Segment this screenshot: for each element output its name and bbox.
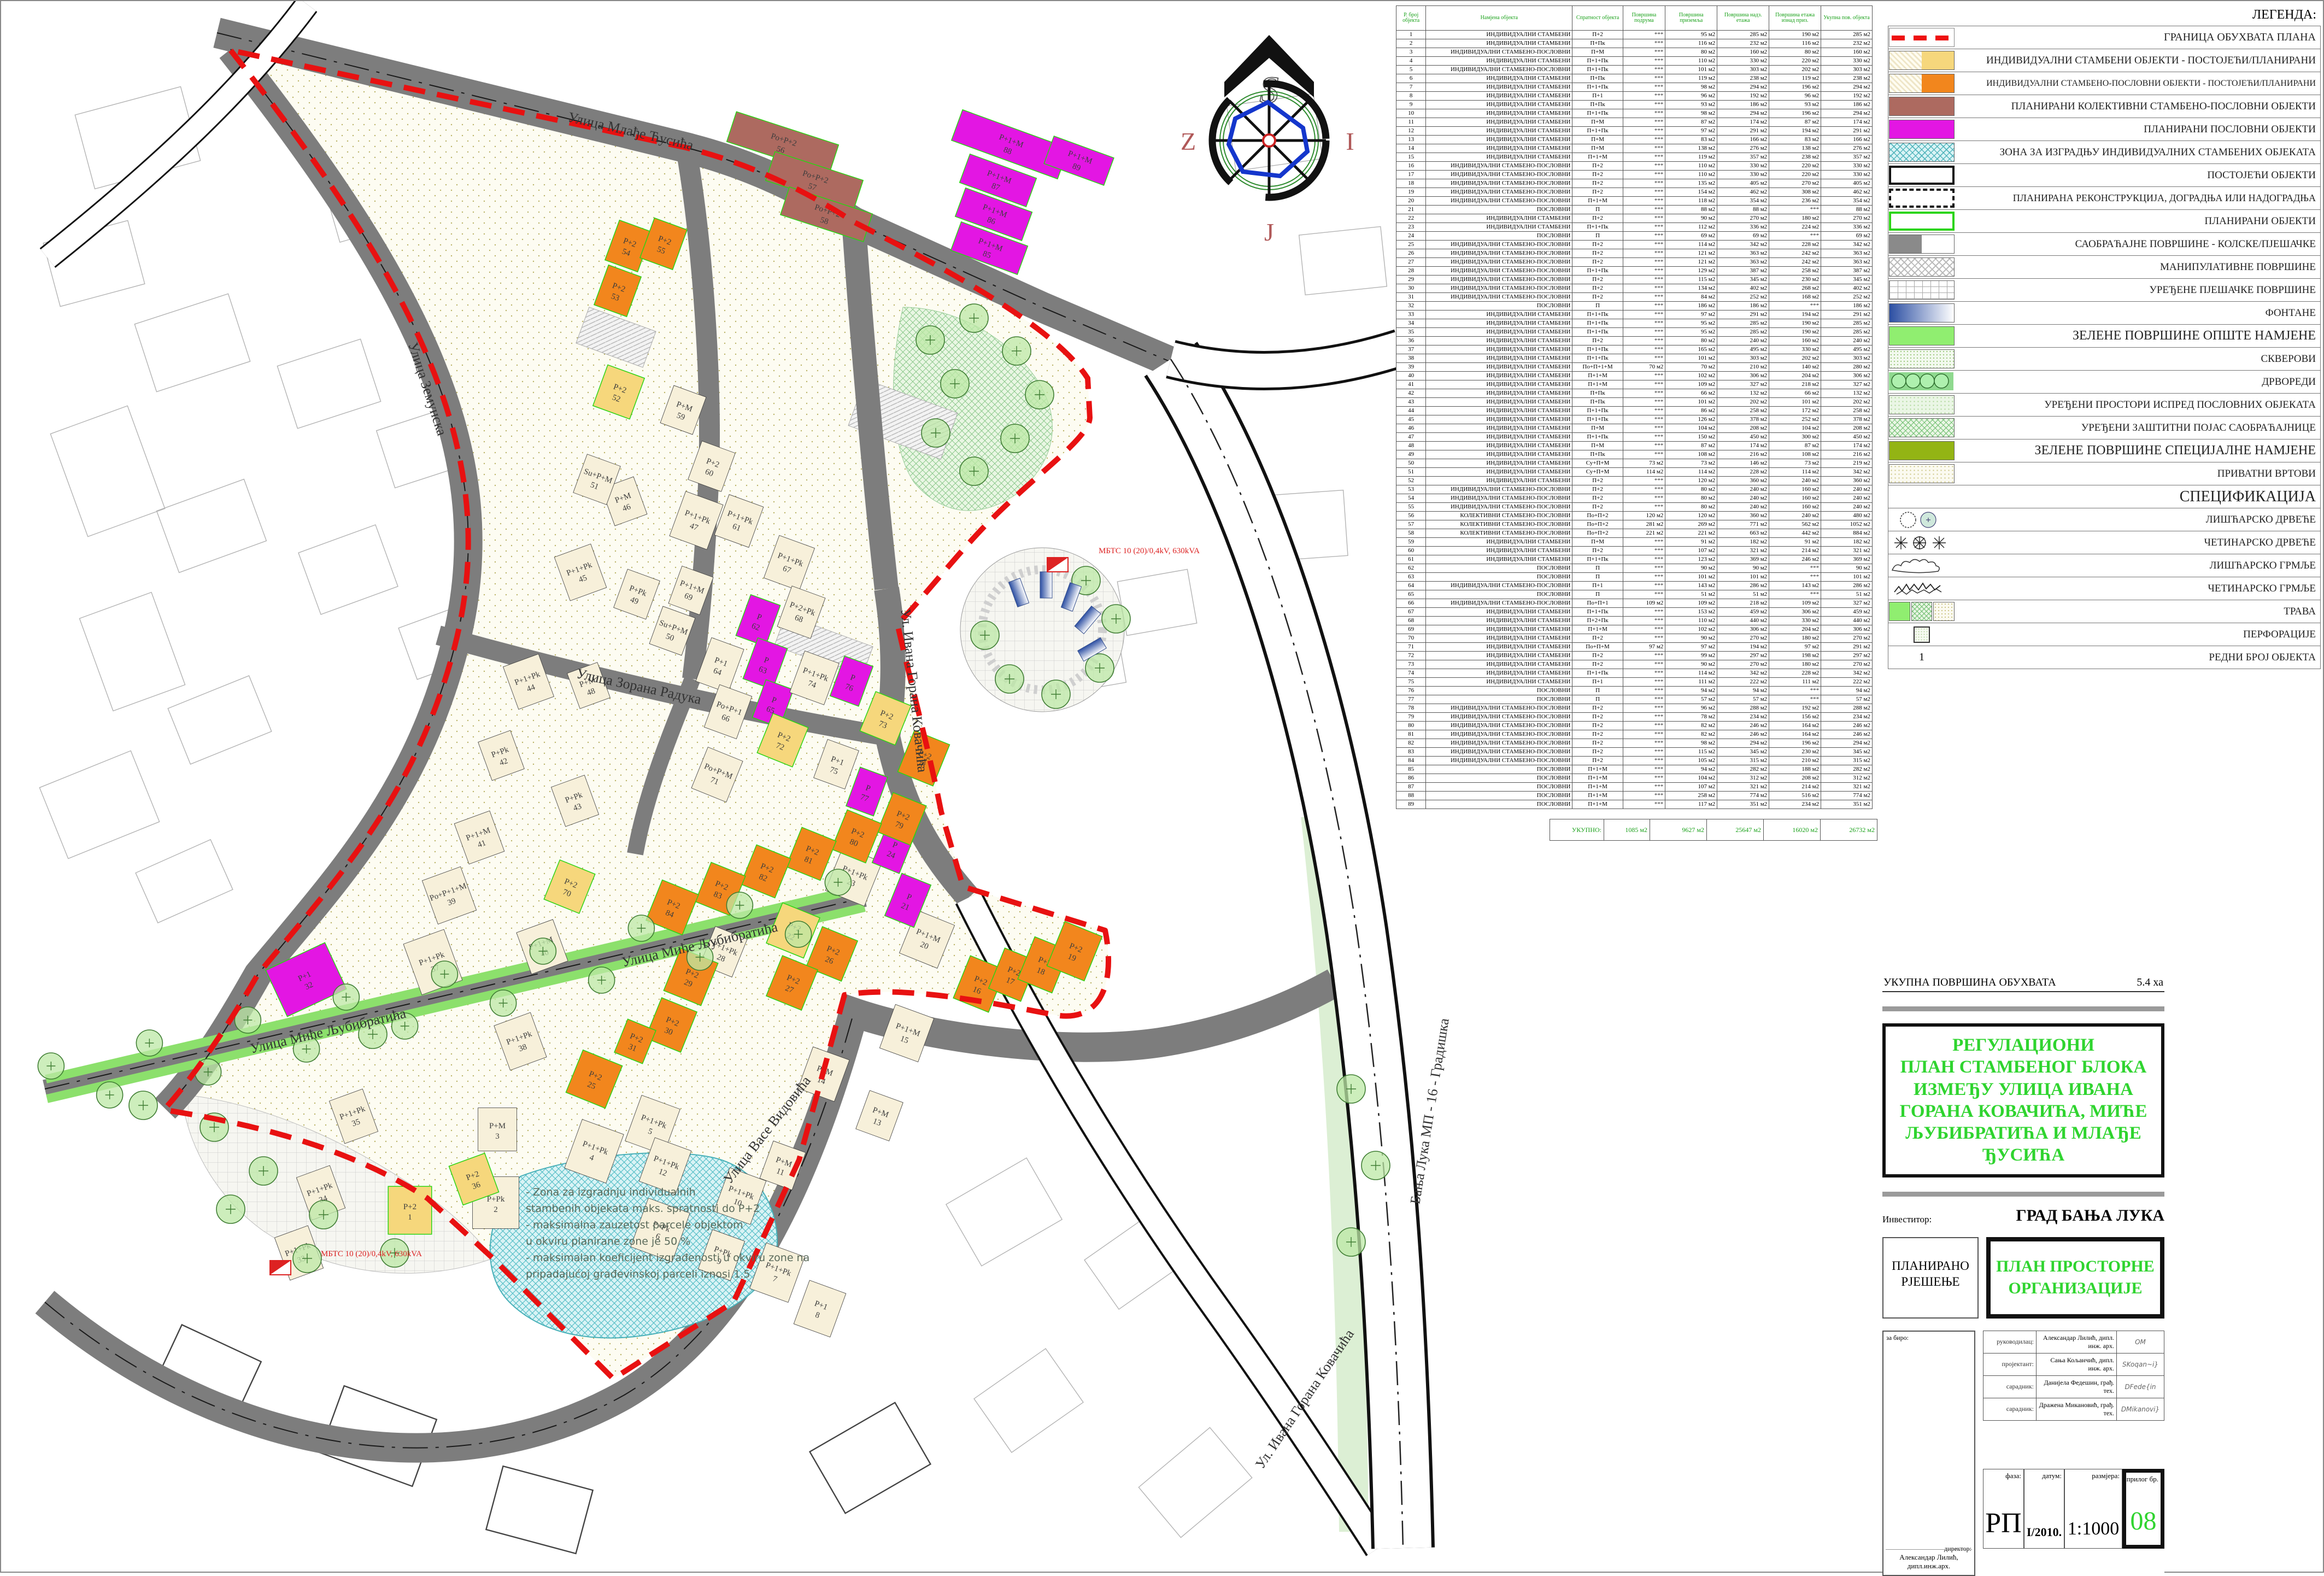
attachment-cell: прилог бр. 08 <box>2122 1469 2164 1549</box>
table-row: 74ИНДИВИДУАЛНИ СТАМБЕНИП+1+Пк***114 м234… <box>1396 669 1873 678</box>
table-row: 77ПОСЛОВНИП***57 м257 м2***57 м2 <box>1396 695 1873 704</box>
legend-swatch-garden <box>1889 464 1955 483</box>
bureau-box: за биро: директор: Александар Лилић, дип… <box>1882 1331 1975 1576</box>
table-row: 30ИНДИВИДУАЛНИ СТАМБЕНО-ПОСЛОВНИП+2***13… <box>1396 284 1873 293</box>
table-row: 26ИНДИВИДУАЛНИ СТАМБЕНО-ПОСЛОВНИП+2***12… <box>1396 249 1873 258</box>
table-row: 49ИНДИВИДУАЛНИ СТАМБЕНИП+Пк***108 м2216 … <box>1396 450 1873 459</box>
signature: SKoqan~i} <box>2117 1353 2164 1375</box>
area-summary: УКУПНА ПОВРШИНА ОБУХВАТА 5.4 ха <box>1882 975 2164 992</box>
legend-label: ПОСТОЈЕЋИ ОБЈЕКТИ <box>1955 169 2320 181</box>
credit-row: сарадник:Данијела Федешин, грађ. тех.DFe… <box>1983 1375 2164 1398</box>
table-header: Површина етажа изнад приз. <box>1769 6 1821 31</box>
table-row: 23ИНДИВИДУАЛНИ СТАМБЕНИП+1+Пк***112 м233… <box>1396 223 1873 232</box>
legend-label: ПЛАНИРАНА РЕКОНСТРУКЦИЈА, ДОГРАДЊА ИЛИ Н… <box>1955 192 2320 204</box>
legend-label: СПЕЦИФИКАЦИЈА <box>1955 488 2320 506</box>
legend-item: СКВЕРОВИ <box>1888 347 2320 370</box>
building: P+21 <box>389 1187 431 1234</box>
table-row: 2ИНДИВИДУАЛНИ СТАМБЕНИП+Пк***116 м2232 м… <box>1396 39 1873 48</box>
table-row: 59ИНДИВИДУАЛНИ СТАМБЕНИП+М***91 м2182 м2… <box>1396 538 1873 547</box>
tree-icon <box>825 869 851 895</box>
legend-swatch-green <box>1889 326 1955 345</box>
svg-text:3: 3 <box>495 1132 500 1141</box>
legend-swatch-infront <box>1889 395 1955 414</box>
tree-icon <box>1361 1151 1390 1180</box>
tree-icon <box>1085 654 1114 682</box>
legend-item: ТРАВА <box>1888 600 2320 623</box>
table-header: Спратност објекта <box>1572 6 1623 31</box>
zone-annotation-line: - Zona za izgradnju individualnih <box>526 1186 696 1198</box>
credit-row: пројектант:Сања Кољанчић, дипл. инж. арх… <box>1983 1353 2164 1375</box>
table-row: 1ИНДИВИДУАЛНИ СТАМБЕНИП+2***95 м2285 м21… <box>1396 31 1873 39</box>
table-row: 72ИНДИВИДУАЛНИ СТАМБЕНИП+2***99 м2297 м2… <box>1396 652 1873 660</box>
table-row: 42ИНДИВИДУАЛНИ СТАМБЕНИП+Пк***66 м2132 м… <box>1396 389 1873 398</box>
tree-icon <box>922 419 950 447</box>
table-row: 55ИНДИВИДУАЛНИ СТАМБЕНО-ПОСЛОВНИП+2***80… <box>1396 503 1873 512</box>
zone-annotation-line: u okviru planirane zone je 50 % <box>526 1235 690 1247</box>
spec-totals: УКУПНО:1085 м29627 м225647 м216020 м2267… <box>1550 819 1877 841</box>
table-row: 88ПОСЛОВНИП+1+М***258 м2774 м2516 м2774 … <box>1396 792 1873 800</box>
tree-icon <box>941 370 969 398</box>
main-title-line: ГОРАНА КОВАЧИЋА, МИЋЕ <box>1889 1100 2158 1122</box>
divider-bar <box>1882 1006 2164 1011</box>
table-row: 80ИНДИВИДУАЛНИ СТАМБЕНО-ПОСЛОВНИП+2***82… <box>1396 722 1873 730</box>
phase-value: РП <box>1983 1507 2023 1539</box>
table-row: 9ИНДИВИДУАЛНИ СТАМБЕНИП+Пк***93 м2186 м2… <box>1396 101 1873 109</box>
legend-label: СКВЕРОВИ <box>1955 353 2320 365</box>
table-row: 62ПОСЛОВНИП***90 м290 м2***90 м2 <box>1396 564 1873 573</box>
legend-swatch-squares <box>1889 349 1955 368</box>
tree-icon <box>1025 380 1054 409</box>
table-row: 41ИНДИВИДУАЛНИ СТАМБЕНИП+1+М***109 м2327… <box>1396 380 1873 389</box>
legend-item: ФОНТАНЕ <box>1888 301 2320 324</box>
legend-label: УРЕЂЕНИ ЗАШТИТНИ ПОЈАС САОБРАЋАЈНИЦЕ <box>1955 422 2320 434</box>
legend-label: САОБРАЋАЈНЕ ПОВРШИНЕ - КОЛСКЕ/ПЈЕШАЧКЕ <box>1955 238 2320 250</box>
legend-label: ЗЕЛЕНЕ ПОВРШИНЕ СПЕЦИЈАЛНЕ НАМЈЕНЕ <box>1955 443 2320 458</box>
tree-icon <box>129 1091 157 1120</box>
planned-solution-box: ПЛАНИРАНОРЈЕШЕЊЕ <box>1882 1237 1979 1319</box>
legend-swatch-treerow <box>1889 372 1955 391</box>
tree-icon <box>97 1082 123 1108</box>
legend-label: ЧЕТИНАРСКО ДРВЕЋЕ <box>1955 537 2320 549</box>
table-row: 81ИНДИВИДУАЛНИ СТАМБЕНО-ПОСЛОВНИП+2***82… <box>1396 730 1873 739</box>
tree-icon <box>726 892 753 918</box>
table-row: 86ПОСЛОВНИП+1+М***104 м2312 м2208 м2312 … <box>1396 774 1873 783</box>
table-row: 31ИНДИВИДУАЛНИ СТАМБЕНО-ПОСЛОВНИП+2***84… <box>1396 293 1873 302</box>
tree-icon <box>216 1195 245 1223</box>
legend-swatch-perf <box>1889 625 1955 644</box>
legend-label: ПЛАНИРАНИ ОБЈЕКТИ <box>1955 215 2320 227</box>
table-row: 17ИНДИВИДУАЛНИ СТАМБЕНО-ПОСЛОВНИП+2***11… <box>1396 171 1873 179</box>
totals-label: УКУПНО: <box>1550 819 1604 841</box>
legend-swatch-recon <box>1889 189 1955 208</box>
legend-label: ПЛАНИРАНИ ПОСЛОВНИ ОБЈЕКТИ <box>1955 124 2320 136</box>
table-row: 79ИНДИВИДУАЛНИ СТАМБЕНО-ПОСЛОВНИП+2***78… <box>1396 713 1873 722</box>
table-row: 73ИНДИВИДУАЛНИ СТАМБЕНИП+2***90 м2270 м2… <box>1396 660 1873 669</box>
legend-swatch-plan <box>1889 212 1955 231</box>
street-label: Бања Лука МП - 16 - Градишка <box>1407 1017 1452 1205</box>
main-title-line: ПЛАН СТАМБЕНОГ БЛОКА <box>1889 1056 2158 1078</box>
table-row: 36ИНДИВИДУАЛНИ СТАМБЕНИП+2***80 м2240 м2… <box>1396 337 1873 345</box>
legend-swatch-belt <box>1889 418 1955 437</box>
fountain <box>1040 572 1052 598</box>
table-row: 16ИНДИВИДУАЛНИ СТАМБЕНО-ПОСЛОВНИП+2***11… <box>1396 162 1873 171</box>
signature: OM <box>2117 1331 2164 1353</box>
area-summary-value: 5.4 ха <box>2137 976 2163 989</box>
legend-item: ЗЕЛЕНЕ ПОВРШИНЕ ОПШТЕ НАМЈЕНЕ <box>1888 324 2320 347</box>
svg-text:J: J <box>1264 218 1274 246</box>
table-row: 75ИНДИВИДУАЛНИ СТАМБЕНИП+1***111 м2222 м… <box>1396 678 1873 687</box>
legend-label: МАНИПУЛАТИВНЕ ПОВРШИНЕ <box>1955 261 2320 273</box>
spec-table: Р. број објектаНамјена објектаСпратност … <box>1396 5 1873 809</box>
table-row: 19ИНДИВИДУАЛНИ СТАМБЕНО-ПОСЛОВНИП+2***15… <box>1396 188 1873 197</box>
tree-icon <box>293 1244 321 1273</box>
legend-swatch-res <box>1889 51 1955 70</box>
svg-text:1: 1 <box>408 1213 412 1222</box>
table-row: 65ПОСЛОВНИП***51 м251 м2***51 м2 <box>1396 590 1873 599</box>
table-row: 48ИНДИВИДУАЛНИ СТАМБЕНИП+М***87 м2174 м2… <box>1396 442 1873 450</box>
legend-title: ЛЕГЕНДА: <box>1888 5 2321 26</box>
totals-value: 1085 м2 <box>1604 819 1650 841</box>
table-row: 56КОЛЕКТИВНИ СТАМБЕНО-ПОСЛОВНИПо+П+2120 … <box>1396 512 1873 520</box>
legend-item: ИНДИВИДУАЛНИ СТАМБЕНО-ПОСЛОВНИ ОБЈЕКТИ -… <box>1888 72 2320 95</box>
table-header: Намјена објекта <box>1426 6 1572 31</box>
tree-icon <box>431 961 457 987</box>
compass-rose: S Z I J <box>1181 35 1354 246</box>
table-header: Површина надз. етажа <box>1717 6 1769 31</box>
legend-item: ЧЕТИНАРСКО ГРМЉЕ <box>1888 577 2320 600</box>
legend-label: ЧЕТИНАРСКО ГРМЉЕ <box>1955 583 2320 595</box>
map-panel: P+21P+Pk2P+M3P+1+Pk4P+1+Pk5P+Pk6P+1+Pk7P… <box>1 1 1510 1574</box>
table-row: 47ИНДИВИДУАЛНИ СТАМБЕНИП+1+Пк***150 м245… <box>1396 433 1873 442</box>
totals-value: 16020 м2 <box>1764 819 1821 841</box>
substation-label: МБТС 10 (20)/0,4kV, 630kVA <box>1099 547 1200 555</box>
table-row: 37ИНДИВИДУАЛНИ СТАМБЕНИП+1+Пк***165 м249… <box>1396 345 1873 354</box>
investor-label: Инвеститор: <box>1882 1214 1932 1225</box>
table-row: 32ПОСЛОВНИП***186 м2186 м2***186 м2 <box>1396 302 1873 310</box>
table-row: 66ИНДИВИДУАЛНИ СТАМБЕНО-ПОСЛОВНИПо+П+110… <box>1396 599 1873 608</box>
specification-table-panel: Р. број објектаНамјена објектаСпратност … <box>1396 5 1881 841</box>
legend-label: ФОНТАНЕ <box>1955 307 2320 319</box>
tree-icon <box>971 621 999 649</box>
table-row: 68ИНДИВИДУАЛНИ СТАМБЕНИП+2+Пк***110 м244… <box>1396 617 1873 625</box>
legend-swatch-special <box>1889 441 1955 460</box>
table-row: 13ИНДИВИДУАЛНИ СТАМБЕНИП+М***83 м2166 м2… <box>1396 136 1873 144</box>
tree-icon <box>995 665 1024 693</box>
table-row: 85ПОСЛОВНИП+1+М***94 м2282 м2188 м2282 м… <box>1396 765 1873 774</box>
table-row: 20ИНДИВИДУАЛНИ СТАМБЕНО-ПОСЛОВНИП+1+М***… <box>1396 197 1873 206</box>
signature: DFede{in <box>2117 1375 2164 1398</box>
zone-annotation-line: - maksimalna zauzetost parcele objektom <box>526 1219 743 1231</box>
table-row: 27ИНДИВИДУАЛНИ СТАМБЕНО-ПОСЛОВНИП+2***12… <box>1396 258 1873 267</box>
table-row: 69ИНДИВИДУАЛНИ СТАМБЕНИП+1+М***102 м2306… <box>1396 625 1873 634</box>
zone-annotation-line: stambenih objekata maks. spratnosti do P… <box>526 1203 760 1215</box>
title-block: УКУПНА ПОВРШИНА ОБУХВАТА 5.4 ха РЕГУЛАЦИ… <box>1882 975 2164 1576</box>
legend-swatch-grass <box>1889 602 1955 621</box>
svg-text:P+M: P+M <box>489 1122 506 1130</box>
main-title-line: РЕГУЛАЦИОНИ <box>1889 1034 2158 1056</box>
legend-item: УРЕЂЕНИ ПРОСТОРИ ИСПРЕД ПОСЛОВНИХ ОБЈЕКА… <box>1888 393 2320 416</box>
legend-item: ДРВОРЕДИ <box>1888 370 2320 393</box>
table-row: 22ИНДИВИДУАЛНИ СТАМБЕНИП+2***90 м2270 м2… <box>1396 214 1873 223</box>
table-row: 11ИНДИВИДУАЛНИ СТАМБЕНИП+М***87 м2174 м2… <box>1396 118 1873 127</box>
legend-item: ПЛАНИРАНИ ОБЈЕКТИ <box>1888 209 2320 232</box>
table-row: 57КОЛЕКТИВНИ СТАМБЕНО-ПОСЛОВНИПо+П+2281 … <box>1396 520 1873 529</box>
legend-swatch-col <box>1889 97 1955 116</box>
tree-icon <box>1042 680 1070 708</box>
table-row: 8ИНДИВИДУАЛНИ СТАМБЕНИП+1***96 м2192 м29… <box>1396 92 1873 101</box>
date-value: I/2010. <box>2024 1525 2064 1539</box>
main-title-line: ИЗМЕЂУ УЛИЦА ИВАНА <box>1889 1079 2158 1100</box>
table-row: 60ИНДИВИДУАЛНИ СТАМБЕНИП+2***107 м2321 м… <box>1396 547 1873 555</box>
table-row: 10ИНДИВИДУАЛНИ СТАМБЕНИП+1+Пк***98 м2294… <box>1396 109 1873 118</box>
scale-cell: размјера: 1:1000 <box>2064 1469 2122 1549</box>
table-row: 38ИНДИВИДУАЛНИ СТАМБЕНИП+1+Пк***101 м230… <box>1396 354 1873 363</box>
phase-row: фаза: РП датум: I/2010. размјера: 1:1000… <box>1983 1469 2164 1549</box>
totals-value: 9627 м2 <box>1650 819 1707 841</box>
legend-item: ЧЕТИНАРСКО ДРВЕЋЕ <box>1888 531 2320 554</box>
building: P+M3 <box>478 1108 517 1151</box>
legend-item: ИНДИВИДУАЛНИ СТАМБЕНИ ОБЈЕКТИ - ПОСТОЈЕЋ… <box>1888 49 2320 72</box>
table-row: 28ИНДИВИДУАЛНИ СТАМБЕНО-ПОСЛОВНИП+1+Пк**… <box>1396 267 1873 276</box>
tree-icon <box>309 1200 338 1229</box>
plan-sheet: P+21P+Pk2P+M3P+1+Pk4P+1+Pk5P+Pk6P+1+Pk7P… <box>0 0 2324 1573</box>
table-row: 29ИНДИВИДУАЛНИ СТАМБЕНО-ПОСЛОВНИП+2***11… <box>1396 276 1873 284</box>
table-row: 33ИНДИВИДУАЛНИ СТАМБЕНИП+1+Пк***97 м2291… <box>1396 310 1873 319</box>
credits-table: руководилац:Александар Лилић, дипл. инж.… <box>1983 1331 2164 1421</box>
map-svg: P+21P+Pk2P+M3P+1+Pk4P+1+Pk5P+Pk6P+1+Pk7P… <box>1 1 1510 1574</box>
tree-icon <box>785 921 812 947</box>
tree-icon <box>960 457 988 485</box>
table-row: 87ПОСЛОВНИП+1+М***107 м2321 м2214 м2321 … <box>1396 783 1873 792</box>
table-row: 40ИНДИВИДУАЛНИ СТАМБЕНИП+1+М***102 м2306… <box>1396 372 1873 380</box>
main-title-box: РЕГУЛАЦИОНИПЛАН СТАМБЕНОГ БЛОКАИЗМЕЂУ УЛ… <box>1882 1023 2164 1177</box>
legend-swatch-boundary <box>1889 28 1955 47</box>
legend-label: РЕДНИ БРОЈ ОБЈЕКТА <box>1955 652 2320 664</box>
tree-icon <box>1001 424 1029 453</box>
phase-cell: фаза: РП <box>1983 1469 2024 1549</box>
legend-item: УРЕЂЕНИ ЗАШТИТНИ ПОЈАС САОБРАЋАЈНИЦЕ <box>1888 416 2320 439</box>
legend-item: МАНИПУЛАТИВНЕ ПОВРШИНЕ <box>1888 255 2320 278</box>
table-row: 51ИНДИВИДУАЛНИ СТАМБЕНИСу+П+М114 м2114 м… <box>1396 468 1873 477</box>
legend-item: ПЛАНИРАНА РЕКОНСТРУКЦИЈА, ДОГРАДЊА ИЛИ Н… <box>1888 186 2320 209</box>
legend-item: ПЛАНИРАНИ ПОСЛОВНИ ОБЈЕКТИ <box>1888 118 2320 140</box>
legend-swatch-exist <box>1889 166 1955 185</box>
scale-value: 1:1000 <box>2065 1519 2122 1539</box>
building: P+M13 <box>856 1091 902 1140</box>
signature: DMikanovi} <box>2117 1398 2164 1420</box>
table-row: 43ИНДИВИДУАЛНИ СТАМБЕНИП+Пк***101 м2202 … <box>1396 398 1873 407</box>
legend-swatch-num: 1 <box>1889 648 1955 667</box>
table-row: 71ИНДИВИДУАЛНИ СТАМБЕНИПо+П+М97 м297 м21… <box>1396 643 1873 652</box>
tree-icon <box>1337 1228 1365 1256</box>
tree-icon <box>589 967 615 993</box>
table-row: 46ИНДИВИДУАЛНИ СТАМБЕНИП+М***104 м2208 м… <box>1396 424 1873 433</box>
legend-item: ЛИШЋАРСКО ДРВЕЋЕ <box>1888 508 2320 531</box>
table-row: 3ИНДИВИДУАЛНИ СТАМБЕНО-ПОСЛОВНИП+М***80 … <box>1396 48 1873 57</box>
table-row: 76ПОСЛОВНИП***94 м294 м2***94 м2 <box>1396 687 1873 695</box>
table-header: Укупна пов. објекта <box>1821 6 1873 31</box>
table-row: 35ИНДИВИДУАЛНИ СТАМБЕНИП+1+Пк***95 м2285… <box>1396 328 1873 337</box>
legend-label: УРЕЂЕНЕ ПЈЕШАЧКЕ ПОВРШИНЕ <box>1955 284 2320 296</box>
legend-label: ПЕРФОРАЦИЈЕ <box>1955 629 2320 641</box>
legend-label: ПЛАНИРАНИ КОЛЕКТИВНИ СТАМБЕНО-ПОСЛОВНИ О… <box>1955 101 2320 113</box>
totals-value: 26732 м2 <box>1821 819 1877 841</box>
table-row: 63ПОСЛОВНИП***101 м2101 м2***101 м2 <box>1396 573 1873 582</box>
legend-label: УРЕЂЕНИ ПРОСТОРИ ИСПРЕД ПОСЛОВНИХ ОБЈЕКА… <box>1955 399 2320 411</box>
table-header: Р. број објекта <box>1396 6 1426 31</box>
svg-text:I: I <box>1346 127 1354 155</box>
main-title-line: ЉУБИБРАТИЋА И МЛАЂЕ ЂУСИЋА <box>1889 1122 2158 1167</box>
legend-item: ПРИВАТНИ ВРТОВИ <box>1888 462 2320 485</box>
table-row: 45ИНДИВИДУАЛНИ СТАМБЕНИП+1+Пк***126 м237… <box>1396 415 1873 424</box>
table-header: Површина приземља <box>1665 6 1717 31</box>
table-row: 70ИНДИВИДУАЛНИ СТАМБЕНИП+2***90 м2270 м2… <box>1396 634 1873 643</box>
legend-item: ГРАНИЦА ОБУХВАТА ПЛАНА <box>1888 26 2320 49</box>
legend-swatch-conif <box>1889 533 1955 552</box>
credit-row: руководилац:Александар Лилић, дипл. инж.… <box>1983 1331 2164 1353</box>
date-cell: датум: I/2010. <box>2024 1469 2064 1549</box>
table-row: 5ИНДИВИДУАЛНИ СТАМБЕНО-ПОСЛОВНИП+1+Пк***… <box>1396 66 1873 74</box>
legend-item: 1РЕДНИ БРОЈ ОБЈЕКТА <box>1888 646 2320 669</box>
table-row: 89ПОСЛОВНИП+1+М***117 м2351 м2234 м2351 … <box>1396 800 1873 809</box>
totals-value: 25647 м2 <box>1707 819 1764 841</box>
svg-text:Z: Z <box>1181 127 1196 155</box>
substation-label: МБТС 10 (20)/0,4kV, 630kVA <box>321 1250 422 1258</box>
table-row: 54ИНДИВИДУАЛНИ СТАМБЕНО-ПОСЛОВНИП+2***80… <box>1396 494 1873 503</box>
legend-swatch-traffic <box>1889 235 1955 254</box>
table-row: 14ИНДИВИДУАЛНИ СТАМБЕНИП+М***138 м2276 м… <box>1396 144 1873 153</box>
table-row: 78ИНДИВИДУАЛНИ СТАМБЕНО-ПОСЛОВНИП+2***96… <box>1396 704 1873 713</box>
plan-organization-box: ПЛАН ПРОСТОРНЕОРГАНИЗАЦИЈЕ <box>1986 1237 2164 1319</box>
legend-label: ИНДИВИДУАЛНИ СТАМБЕНО-ПОСЛОВНИ ОБЈЕКТИ -… <box>1955 79 2320 89</box>
legend-item: ПЕРФОРАЦИЈЕ <box>1888 623 2320 646</box>
legend-swatch-paved <box>1889 280 1955 300</box>
legend-item: ЗОНА ЗА ИЗГРАДЊУ ИНДИВИДУАЛНИХ СТАМБЕНИХ… <box>1888 140 2320 163</box>
legend-label: ТРАВА <box>1955 606 2320 618</box>
legend-label: ИНДИВИДУАЛНИ СТАМБЕНИ ОБЈЕКТИ - ПОСТОЈЕЋ… <box>1955 55 2320 67</box>
legend-label: ГРАНИЦА ОБУХВАТА ПЛАНА <box>1955 31 2320 44</box>
building: P+18 <box>794 1281 846 1337</box>
credit-row: сарадник:Дражена Микановић, грађ. тех.DM… <box>1983 1398 2164 1420</box>
table-row: 67ИНДИВИДУАЛНИ СТАМБЕНИП+1+Пк***153 м245… <box>1396 608 1873 617</box>
table-row: 52ИНДИВИДУАЛНИ СТАМБЕНИП+2***120 м2360 м… <box>1396 477 1873 485</box>
table-row: 12ИНДИВИДУАЛНИ СТАМБЕНИП+1+Пк***97 м2291… <box>1396 127 1873 136</box>
table-row: 84ИНДИВИДУАЛНИ СТАМБЕНО-ПОСЛОВНИП+2***10… <box>1396 757 1873 765</box>
tree-icon <box>38 1053 64 1079</box>
legend-item: УРЕЂЕНЕ ПЈЕШАЧКЕ ПОВРШИНЕ <box>1888 278 2320 301</box>
table-row: 44ИНДИВИДУАЛНИ СТАМБЕНИП+1+Пк***86 м2258… <box>1396 407 1873 415</box>
legend-swatch-manip <box>1889 257 1955 277</box>
table-row: 83ИНДИВИДУАЛНИ СТАМБЕНО-ПОСЛОВНИП+2***11… <box>1396 748 1873 757</box>
tree-icon <box>1337 1075 1365 1103</box>
table-row: 24ПОСЛОВНИП***69 м269 м2***69 м2 <box>1396 232 1873 241</box>
legend-swatch-dshrub <box>1889 556 1955 575</box>
table-row: 15ИНДИВИДУАЛНИ СТАМБЕНИП+1+М***119 м2357… <box>1396 153 1873 162</box>
table-row: 53ИНДИВИДУАЛНИ СТАМБЕНО-ПОСЛОВНИП+2***80… <box>1396 485 1873 494</box>
tree-icon <box>333 984 359 1010</box>
divider-bar <box>1882 1192 2164 1197</box>
bureau-label: за биро: <box>1886 1334 1909 1342</box>
tree-icon <box>960 304 988 332</box>
legend-swatch-mix <box>1889 74 1955 93</box>
table-row: 64ИНДИВИДУАЛНИ СТАМБЕНО-ПОСЛОВНИП+1***14… <box>1396 582 1873 590</box>
legend-item: САОБРАЋАЈНЕ ПОВРШИНЕ - КОЛСКЕ/ПЈЕШАЧКЕ <box>1888 232 2320 255</box>
svg-text:2: 2 <box>494 1205 498 1214</box>
legend-panel: ЛЕГЕНДА: ГРАНИЦА ОБУХВАТА ПЛАНАИНДИВИДУА… <box>1888 5 2321 669</box>
legend-item: СПЕЦИФИКАЦИЈА <box>1888 485 2320 508</box>
legend-swatch-cshrub <box>1889 579 1955 598</box>
legend-item: ЗЕЛЕНЕ ПОВРШИНЕ СПЕЦИЈАЛНЕ НАМЈЕНЕ <box>1888 439 2320 462</box>
director-name: Александар Лилић, дипл.инж.арх. <box>1886 1549 1972 1571</box>
legend-item: ЛИШЋАРСКО ГРМЉЕ <box>1888 554 2320 577</box>
legend-item: ПОСТОЈЕЋИ ОБЈЕКТИ <box>1888 163 2320 186</box>
legend-label: ЛИШЋАРСКО ГРМЉЕ <box>1955 560 2320 572</box>
svg-text:P+2: P+2 <box>403 1203 416 1211</box>
zone-annotation-line: - maksimalan koeficijent izgrađenosti u … <box>526 1252 809 1264</box>
table-row: 7ИНДИВИДУАЛНИ СТАМБЕНИП+1+Пк***98 м2294 … <box>1396 83 1873 92</box>
table-row: 58КОЛЕКТИВНИ СТАМБЕНО-ПОСЛОВНИПо+П+2221 … <box>1396 529 1873 538</box>
tree-icon <box>628 915 654 941</box>
legend-label: ЗЕЛЕНЕ ПОВРШИНЕ ОПШТЕ НАМЈЕНЕ <box>1955 329 2320 343</box>
table-row: 61ИНДИВИДУАЛНИ СТАМБЕНИП+1+Пк***123 м236… <box>1396 555 1873 564</box>
tree-icon <box>490 990 517 1016</box>
table-row: 34ИНДИВИДУАЛНИ СТАМБЕНИП+1+Пк***95 м2285… <box>1396 319 1873 328</box>
tree-icon <box>916 326 944 354</box>
tree-icon <box>530 938 556 964</box>
tree-icon <box>1102 605 1130 633</box>
zone-annotation-line: pripadajućoj građevinskoj parceli iznosi… <box>526 1268 750 1280</box>
attachment-number: 08 <box>2126 1506 2161 1536</box>
legend-label: ДРВОРЕДИ <box>1955 376 2320 388</box>
legend-label: ЛИШЋАРСКО ДРВЕЋЕ <box>1955 514 2320 526</box>
table-row: 82ИНДИВИДУАЛНИ СТАМБЕНО-ПОСЛОВНИП+2***98… <box>1396 739 1873 748</box>
legend-swatch-zone <box>1889 143 1955 162</box>
table-row: 18ИНДИВИДУАЛНИ СТАМБЕНО-ПОСЛОВНИП+2***13… <box>1396 179 1873 188</box>
tree-icon <box>249 1157 278 1185</box>
tree-icon <box>1002 337 1031 365</box>
area-summary-label: УКУПНА ПОВРШИНА ОБУХВАТА <box>1883 976 2056 989</box>
legend-item: ПЛАНИРАНИ КОЛЕКТИВНИ СТАМБЕНО-ПОСЛОВНИ О… <box>1888 95 2320 118</box>
legend-swatch-fountain <box>1889 303 1955 323</box>
svg-text:P+Pk: P+Pk <box>487 1195 505 1204</box>
table-row: 25ИНДИВИДУАЛНИ СТАМБЕНО-ПОСЛОВНИП+2***11… <box>1396 241 1873 249</box>
legend-swatch-bus <box>1889 120 1955 139</box>
legend-label: ЗОНА ЗА ИЗГРАДЊУ ИНДИВИДУАЛНИХ СТАМБЕНИХ… <box>1955 147 2320 159</box>
legend-swatch-decid <box>1889 510 1955 529</box>
table-row: 4ИНДИВИДУАЛНИ СТАМБЕНИП+1+Пк***110 м2330… <box>1396 57 1873 66</box>
investor-name: ГРАД БАЊА ЛУКА <box>2016 1206 2165 1225</box>
table-header: Површина подрума <box>1623 6 1665 31</box>
tree-icon <box>136 1030 162 1056</box>
legend-swatch-none <box>1889 487 1955 506</box>
table-row: 39ИНДИВИДУАЛНИ СТАМБЕНИПо+П+1+М70 м270 м… <box>1396 363 1873 372</box>
legend-label: ПРИВАТНИ ВРТОВИ <box>1955 468 2320 480</box>
table-row: 50ИНДИВИДУАЛНИ СТАМБЕНИСу+П+М73 м273 м21… <box>1396 459 1873 468</box>
table-row: 21ПОСЛОВНИП***88 м288 м2***88 м2 <box>1396 206 1873 214</box>
table-row: 6ИНДИВИДУАЛНИ СТАМБЕНИП+Пк***119 м2238 м… <box>1396 74 1873 83</box>
